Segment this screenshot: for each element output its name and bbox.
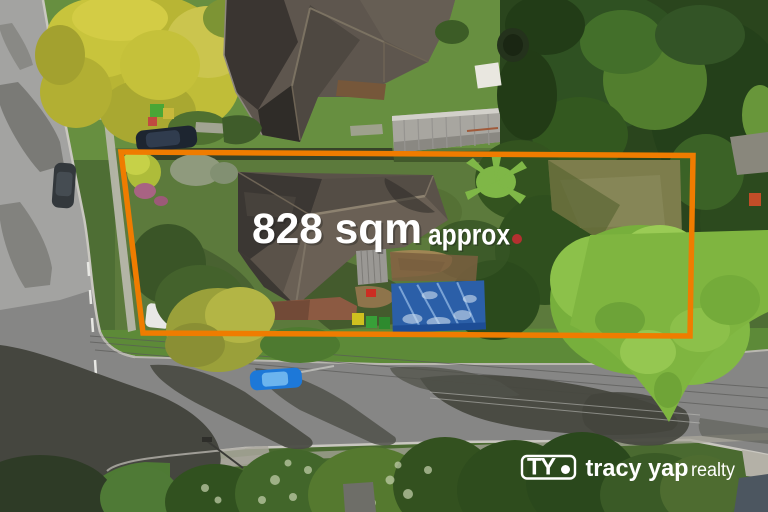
svg-text:tracy yap: tracy yap bbox=[586, 455, 689, 482]
svg-text:TY: TY bbox=[527, 454, 556, 481]
svg-text:realty: realty bbox=[691, 460, 735, 481]
svg-text:828 sqm: 828 sqm bbox=[252, 205, 422, 253]
svg-text:approx: approx bbox=[428, 219, 510, 252]
